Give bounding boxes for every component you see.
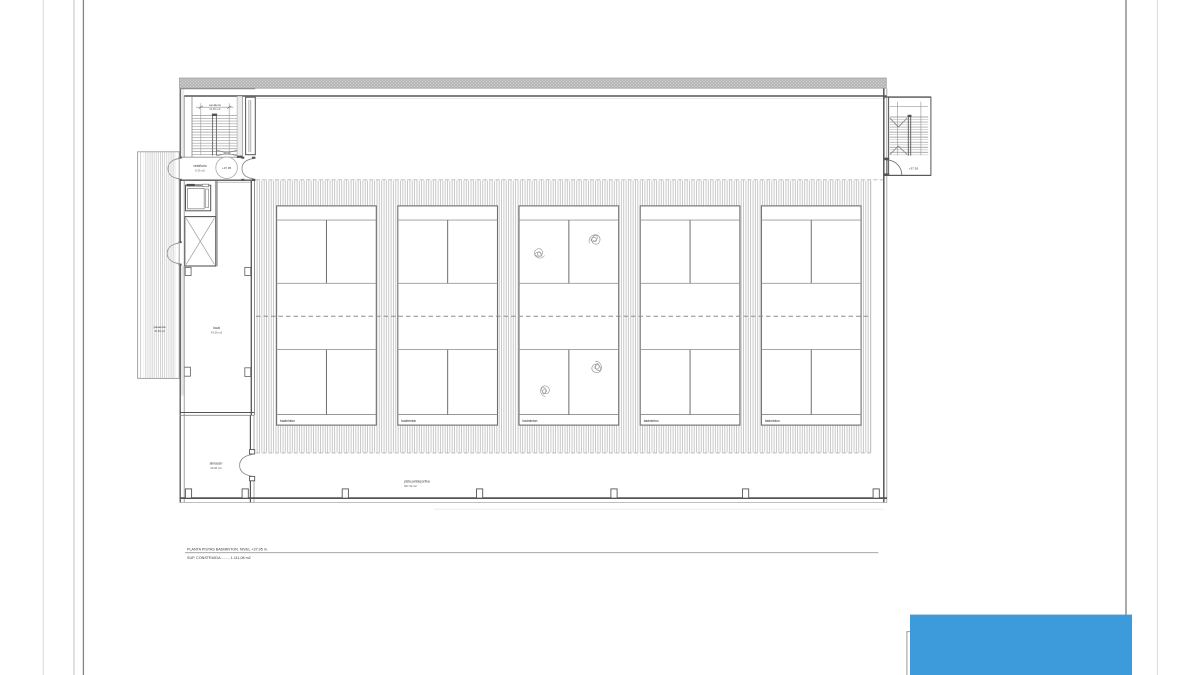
svg-text:+37.95: +37.95	[222, 166, 232, 170]
svg-text:escalera: escalera	[209, 103, 221, 107]
svg-text:20.06 m2: 20.06 m2	[210, 466, 222, 470]
svg-text:6.33 m2: 6.33 m2	[195, 168, 205, 172]
svg-text:927.30 m2: 927.30 m2	[404, 484, 417, 488]
svg-text:PLANTA PISTAS BADMINTON. NIVEL: PLANTA PISTAS BADMINTON. NIVEL +37.95 m.	[187, 547, 268, 551]
svg-text:pista polideportiva: pista polideportiva	[404, 480, 430, 484]
svg-text:12.46 m2: 12.46 m2	[209, 107, 221, 111]
svg-text:badminton: badminton	[401, 419, 416, 423]
svg-text:30.69 m2: 30.69 m2	[154, 330, 165, 333]
svg-text:badminton: badminton	[644, 419, 659, 423]
svg-text:43.26 m2: 43.26 m2	[211, 330, 223, 334]
svg-text:+37.95: +37.95	[909, 167, 919, 171]
svg-text:vestíbulo: vestíbulo	[193, 164, 207, 168]
svg-text:pasarela: pasarela	[154, 325, 166, 329]
svg-text:local: local	[213, 326, 220, 330]
svg-text:almacén: almacén	[210, 462, 223, 466]
svg-text:SUP. CONSTRUIDA......... 1.111: SUP. CONSTRUIDA......... 1.111,08 m2	[187, 556, 251, 560]
svg-text:badminton: badminton	[765, 419, 780, 423]
svg-text:badminton: badminton	[280, 419, 295, 423]
svg-text:badminton: badminton	[523, 419, 538, 423]
